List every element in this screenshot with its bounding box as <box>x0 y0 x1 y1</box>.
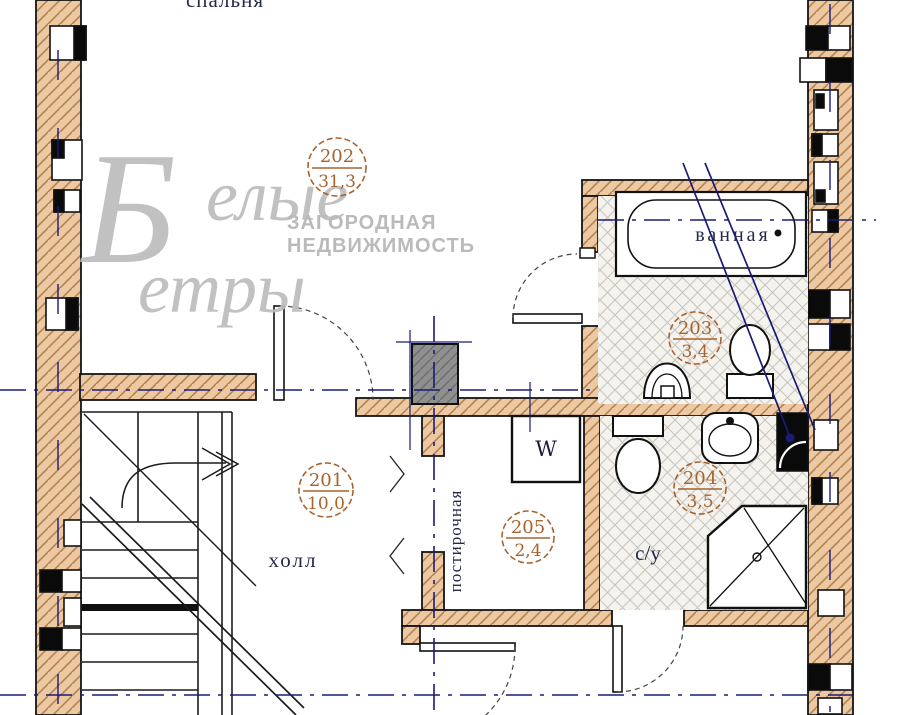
riser-dot <box>786 434 795 443</box>
bathroom-left-jamb <box>582 196 598 252</box>
door-leaf-bottom-right <box>613 626 622 692</box>
bathtub-drain <box>775 230 782 237</box>
toilet-tank-wc <box>613 416 663 436</box>
room-name-bathroom: ванная <box>695 224 771 246</box>
laundry-left-jamb-bottom <box>422 552 444 610</box>
sink-wc-inner <box>709 424 751 456</box>
door-stop-bathroom <box>580 248 595 258</box>
room-number-bedroom: 202 <box>320 146 354 167</box>
toilet-bowl-wc <box>616 439 660 493</box>
room-number-hall: 201 <box>309 470 343 491</box>
watermark-word2: етры <box>138 248 306 328</box>
room-name-laundry: постирочная <box>446 490 465 593</box>
room-number-wc: 204 <box>683 468 717 489</box>
watermark-tagline-2: НЕДВИЖИМОСТЬ <box>287 235 475 257</box>
bottom-door-jamb <box>402 626 420 644</box>
room-area-hall: 10,0 <box>307 494 345 514</box>
sink-wc-tap <box>726 417 734 425</box>
watermark-tagline-1: ЗАГОРОДНАЯ <box>287 212 436 234</box>
stair-thick-tread <box>82 604 198 611</box>
sink-bathroom-tap <box>661 386 674 398</box>
laundry-wc-wall <box>584 416 600 612</box>
floor-plan-svg: W Б елые етры ЗАГОРОДНАЯ <box>0 0 900 715</box>
room-area-bathroom: 3,4 <box>681 342 708 362</box>
bottom-wall-right <box>684 610 808 626</box>
vent-shaft <box>412 344 458 404</box>
room-number-bathroom: 203 <box>678 318 712 339</box>
hall-bedroom-wall <box>80 374 256 400</box>
room-area-wc: 3,5 <box>686 492 713 512</box>
laundry-left-jamb-top <box>422 416 444 456</box>
floor-plan-page: W Б елые етры ЗАГОРОДНАЯ <box>0 0 900 715</box>
room-name-hall: холл <box>269 548 318 572</box>
room-area-bedroom: 31,3 <box>318 172 356 192</box>
room-number-laundry: 205 <box>511 517 545 538</box>
washing-machine-label: W <box>535 437 557 461</box>
room-name-bedroom: спальня <box>186 0 264 12</box>
room-area-laundry: 2,4 <box>514 541 541 561</box>
door-leaf-bathroom <box>513 314 582 323</box>
room-name-wc: с/у <box>635 541 661 565</box>
laundry-fixtures: W <box>512 416 580 482</box>
